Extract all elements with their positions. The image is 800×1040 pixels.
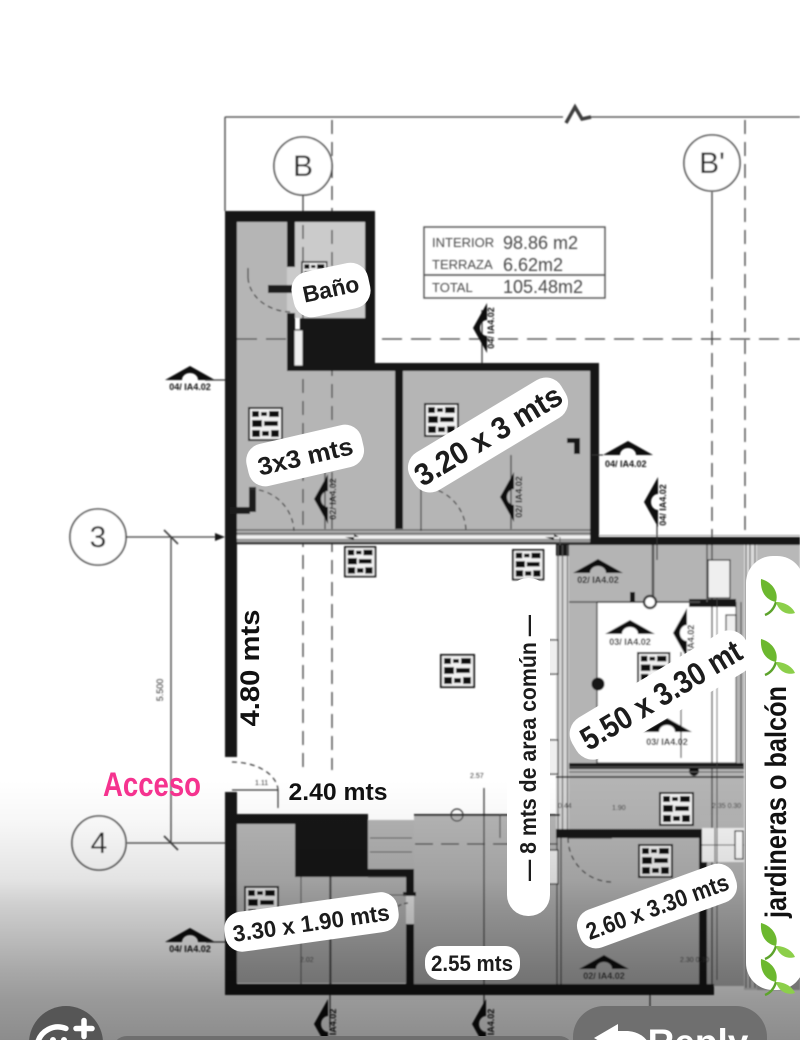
svg-text:02/ IA4.02: 02/ IA4.02 xyxy=(514,476,524,518)
svg-text:TERRAZA: TERRAZA xyxy=(432,257,493,272)
svg-text:2.55 mts: 2.55 mts xyxy=(431,951,513,976)
svg-text:B: B xyxy=(293,150,313,183)
svg-text:2.57: 2.57 xyxy=(470,773,484,780)
svg-text:2.40 mts: 2.40 mts xyxy=(289,779,388,806)
svg-text:IA4.02: IA4.02 xyxy=(686,625,696,652)
svg-text:03/ IA4.02: 03/ IA4.02 xyxy=(609,637,651,647)
svg-text:03/ IA4.02: 03/ IA4.02 xyxy=(646,737,688,747)
svg-text:6.62m2: 6.62m2 xyxy=(503,255,563,275)
svg-text:INTERIOR: INTERIOR xyxy=(432,235,494,250)
svg-text:4.80 mts: 4.80 mts xyxy=(235,610,265,727)
svg-text:jardineras o balcón: jardineras o balcón xyxy=(760,686,793,919)
svg-text:5.500: 5.500 xyxy=(155,679,165,702)
svg-text:Acceso: Acceso xyxy=(103,766,201,804)
svg-text:04/ IA4.02: 04/ IA4.02 xyxy=(658,484,668,526)
svg-text:3: 3 xyxy=(90,521,107,554)
svg-text:04/ IA4.02: 04/ IA4.02 xyxy=(486,307,496,349)
svg-text:TOTAL: TOTAL xyxy=(432,280,473,295)
svg-text:02/ IA4.02: 02/ IA4.02 xyxy=(328,478,338,520)
svg-text:— 8 mts de area común —: — 8 mts de area común — xyxy=(515,615,541,881)
svg-text:02/ IA4.02: 02/ IA4.02 xyxy=(577,575,619,585)
svg-text:04/ IA4.02: 04/ IA4.02 xyxy=(169,382,211,392)
svg-text:98.86 m2: 98.86 m2 xyxy=(503,233,578,253)
svg-text:04/ IA4.02: 04/ IA4.02 xyxy=(605,459,647,469)
svg-text:105.48m2: 105.48m2 xyxy=(503,277,583,297)
svg-text:B': B' xyxy=(699,147,725,180)
svg-text:Reply: Reply xyxy=(648,1022,749,1040)
